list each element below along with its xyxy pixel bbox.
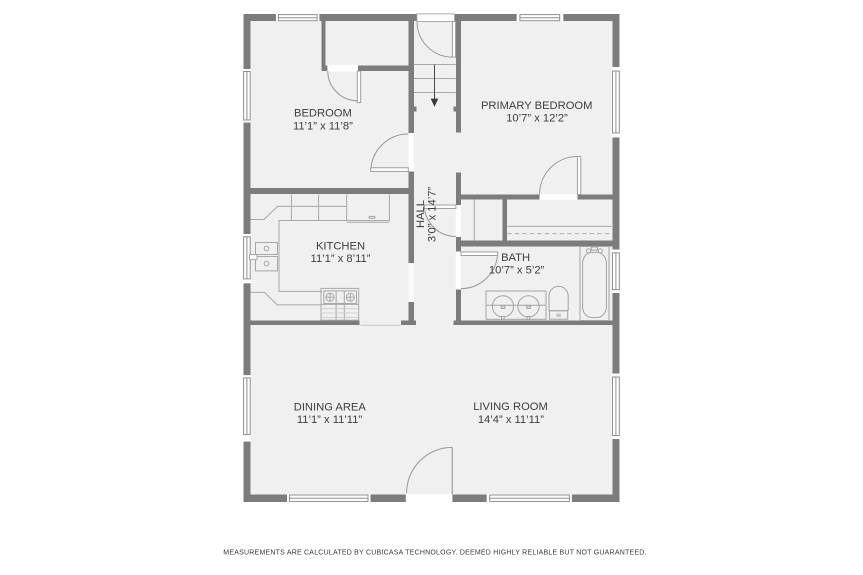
svg-text:10’7” x 5’2”: 10’7” x 5’2” [489, 265, 545, 277]
svg-text:PRIMARY BEDROOM: PRIMARY BEDROOM [481, 100, 592, 112]
svg-text:DINING AREA: DINING AREA [294, 401, 367, 413]
svg-text:10’7” x 12’2”: 10’7” x 12’2” [506, 113, 568, 125]
svg-text:MEASUREMENTS ARE CALCULATED BY: MEASUREMENTS ARE CALCULATED BY CUBICASA … [223, 550, 646, 557]
svg-text:3’0” x 14’7”: 3’0” x 14’7” [427, 187, 439, 243]
svg-text:11’1” x 11’11”: 11’1” x 11’11” [297, 414, 363, 426]
svg-text:11’1” x 11’8”: 11’1” x 11’8” [293, 121, 353, 133]
svg-text:14’4” x 11’11”: 14’4” x 11’11” [478, 414, 544, 426]
svg-text:LIVING ROOM: LIVING ROOM [473, 401, 548, 413]
svg-text:HALL: HALL [415, 200, 427, 228]
svg-text:BATH: BATH [501, 252, 530, 264]
svg-text:11’1” x 8’11”: 11’1” x 8’11” [311, 253, 371, 265]
svg-text:BEDROOM: BEDROOM [294, 108, 352, 120]
svg-text:KITCHEN: KITCHEN [316, 241, 365, 253]
